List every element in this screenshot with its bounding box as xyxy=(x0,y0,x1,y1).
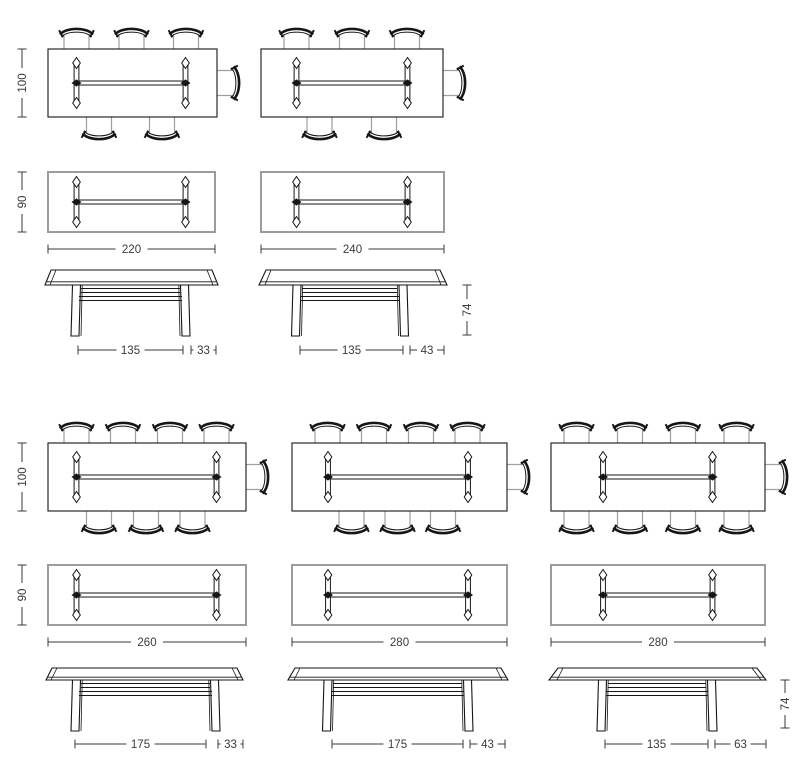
dim-label-leg-span: 135 xyxy=(647,739,666,751)
figure-280-elevation: 175 43 xyxy=(288,668,508,751)
tabletop-side xyxy=(45,270,218,285)
chair-icon xyxy=(199,423,234,445)
depth-dimension: 90 xyxy=(17,172,29,232)
chair-icon xyxy=(719,511,754,533)
figure-260-plan-with-chairs: 100 xyxy=(17,423,268,533)
dim-label-width: 220 xyxy=(122,244,141,256)
figure-260-elevation: 175 33 xyxy=(46,668,243,751)
chair-icon xyxy=(153,423,188,445)
depth-dimension: 100 xyxy=(17,443,29,511)
width-dimension: 220 xyxy=(48,244,215,256)
chair-icon xyxy=(302,117,337,139)
stretcher-rails xyxy=(606,684,708,696)
chair-icon xyxy=(380,511,415,533)
chair-icon xyxy=(246,460,268,495)
chair-icon xyxy=(613,423,648,445)
dim-label-width: 280 xyxy=(648,637,667,649)
chair-icon xyxy=(106,423,141,445)
chair-icon xyxy=(507,460,529,495)
table-leg-icon xyxy=(209,680,220,731)
chair-icon xyxy=(217,66,239,101)
dim-label-depth: 90 xyxy=(17,196,29,209)
leg-span-dimension: 175 xyxy=(332,739,463,751)
chair-icon xyxy=(175,511,210,533)
figure-280-plan-top: 280 xyxy=(292,565,507,649)
table-leg-icon xyxy=(462,680,473,731)
table-leg-icon xyxy=(397,285,408,336)
table-leg-icon xyxy=(292,285,303,336)
dim-label-width: 240 xyxy=(343,244,362,256)
depth-dimension: 90 xyxy=(17,565,29,625)
chair-icon xyxy=(426,511,461,533)
chair-icon xyxy=(613,511,648,533)
chair-icon xyxy=(334,511,369,533)
stretcher-rails xyxy=(79,289,182,301)
chair-icon xyxy=(443,66,465,101)
table-leg-icon xyxy=(706,680,717,731)
dim-label-height: 74 xyxy=(462,303,474,316)
height-dimension: 74 xyxy=(780,680,792,728)
figure-280b-elevation: 135 63 74 xyxy=(549,668,792,751)
dim-label-overhang: 43 xyxy=(481,739,494,751)
dim-label-width: 260 xyxy=(137,637,156,649)
figure-260-plan-top: 90 260 xyxy=(17,565,246,649)
chair-icon xyxy=(279,29,314,51)
chair-icon xyxy=(666,511,701,533)
chair-icon xyxy=(335,29,370,51)
chair-icon xyxy=(59,29,94,51)
figure-240-elevation: 135 43 74 xyxy=(259,270,474,357)
tabletop-outline xyxy=(261,49,443,117)
overhang-dimension: 43 xyxy=(470,739,505,751)
figure-280b-plan-top: 280 xyxy=(551,565,765,649)
overhang-dimension: 33 xyxy=(191,345,216,357)
chair-icon xyxy=(390,29,425,51)
dim-label-overhang: 63 xyxy=(734,739,747,751)
figure-220-elevation: 135 33 xyxy=(45,270,218,357)
stretcher-rails xyxy=(300,289,399,301)
figure-220-plan-top: 90 220 xyxy=(17,172,215,256)
chair-icon xyxy=(404,423,439,445)
chair-icon xyxy=(82,117,117,139)
height-dimension: 74 xyxy=(462,285,474,335)
dim-label-depth: 100 xyxy=(17,467,29,486)
tabletop-outline xyxy=(261,172,444,232)
dimension-drawing: 100 90 220 xyxy=(0,0,807,769)
chair-icon xyxy=(114,29,149,51)
dim-label-overhang: 33 xyxy=(197,345,210,357)
spec-sheet: 100 90 220 xyxy=(0,0,807,769)
chair-icon xyxy=(559,511,594,533)
overhang-dimension: 63 xyxy=(715,739,766,751)
chair-icon xyxy=(666,423,701,445)
chair-icon xyxy=(719,423,754,445)
leg-span-dimension: 135 xyxy=(300,345,403,357)
table-leg-icon xyxy=(179,285,190,336)
figure-280-plan-with-chairs xyxy=(292,423,529,533)
chair-icon xyxy=(129,511,164,533)
tabletop-side xyxy=(549,668,766,680)
tabletop-side xyxy=(259,270,447,285)
width-dimension: 260 xyxy=(48,637,246,649)
figure-240-plan-top: 240 xyxy=(261,172,444,256)
table-leg-icon xyxy=(597,680,608,731)
chair-icon xyxy=(59,423,94,445)
table-leg-icon xyxy=(323,680,334,731)
depth-dimension: 100 xyxy=(17,49,29,117)
stretcher-rails xyxy=(79,684,212,696)
leg-span-dimension: 175 xyxy=(75,739,206,751)
chair-icon xyxy=(559,423,594,445)
leg-span-dimension: 135 xyxy=(605,739,708,751)
table-leg-icon xyxy=(71,680,82,731)
figure-240-plan-with-chairs xyxy=(261,29,465,139)
dim-label-depth: 90 xyxy=(17,589,29,602)
chair-icon xyxy=(357,423,392,445)
width-dimension: 240 xyxy=(261,244,444,256)
table-leg-icon xyxy=(71,285,82,336)
chair-icon xyxy=(82,511,117,533)
dim-label-overhang: 33 xyxy=(224,739,237,751)
stretcher-rails xyxy=(331,684,464,696)
tabletop-outline xyxy=(551,565,765,625)
leg-span-dimension: 135 xyxy=(78,345,183,357)
dim-label-leg-span: 135 xyxy=(342,345,361,357)
dim-label-width: 280 xyxy=(390,637,409,649)
tabletop-side xyxy=(46,668,243,680)
chair-icon xyxy=(765,460,787,495)
chair-icon xyxy=(169,29,204,51)
dim-label-leg-span: 175 xyxy=(388,739,407,751)
chair-icon xyxy=(310,423,345,445)
dim-label-overhang: 43 xyxy=(421,345,434,357)
overhang-dimension: 43 xyxy=(410,345,444,357)
tabletop-side xyxy=(288,668,508,680)
chair-icon xyxy=(145,117,180,139)
chair-icon xyxy=(450,423,485,445)
dim-label-leg-span: 175 xyxy=(131,739,150,751)
dim-label-height: 74 xyxy=(780,697,792,710)
overhang-dimension: 33 xyxy=(218,739,243,751)
figure-220-plan-with-chairs: 100 xyxy=(17,29,239,139)
figure-280b-plan-with-chairs xyxy=(551,423,787,533)
dim-label-depth: 100 xyxy=(17,73,29,92)
chair-icon xyxy=(367,117,402,139)
width-dimension: 280 xyxy=(551,637,765,649)
width-dimension: 280 xyxy=(292,637,507,649)
dim-label-leg-span: 135 xyxy=(121,345,140,357)
tabletop-outline xyxy=(551,443,765,511)
